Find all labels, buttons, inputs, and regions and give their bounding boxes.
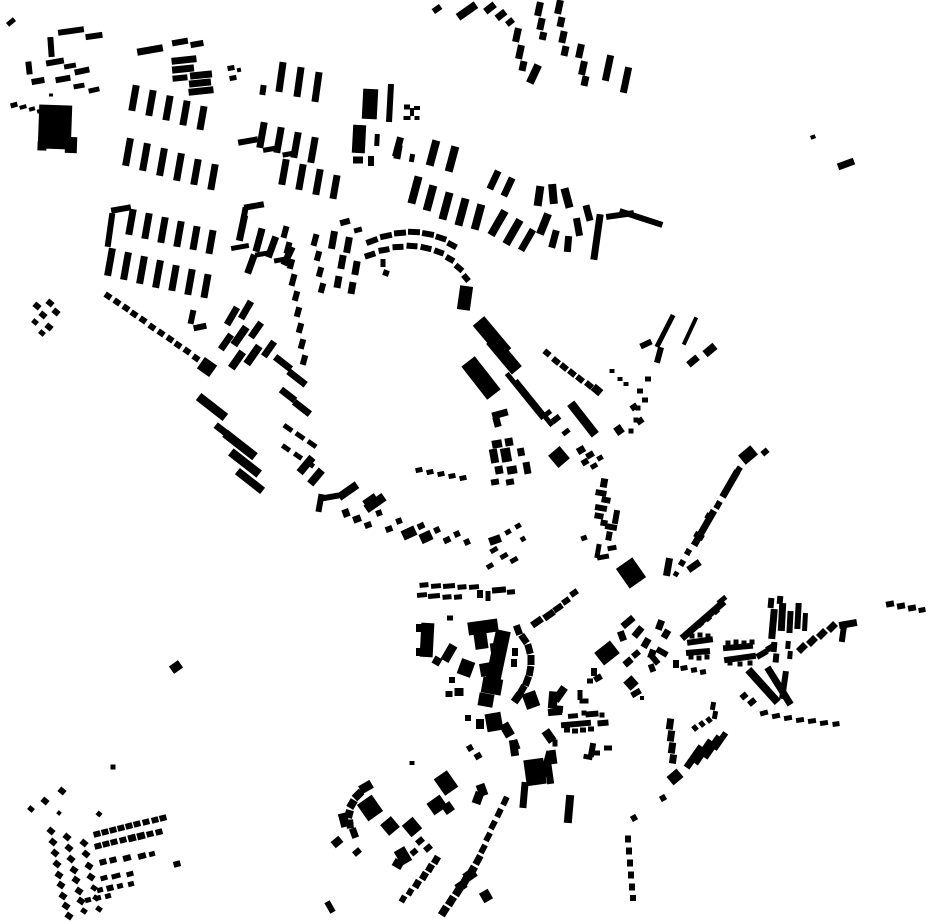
building-footprint xyxy=(594,751,600,756)
building-footprint xyxy=(492,586,506,593)
building-footprint xyxy=(750,640,755,645)
building-footprint xyxy=(469,584,479,590)
building-footprint xyxy=(645,377,651,382)
building-footprint xyxy=(528,655,535,665)
building-footprint xyxy=(476,719,484,729)
building-footprint xyxy=(742,641,747,646)
building-footprint xyxy=(690,634,695,639)
building-footprint xyxy=(580,699,589,704)
building-footprint xyxy=(585,710,598,717)
building-footprint xyxy=(564,728,570,733)
building-footprint xyxy=(37,141,46,150)
building-footprint-map xyxy=(0,0,930,924)
building-footprint xyxy=(832,721,840,727)
map-canvas xyxy=(0,0,930,924)
building-footprint xyxy=(629,884,635,891)
building-footprint xyxy=(406,243,417,250)
building-footprint xyxy=(698,633,703,638)
building-footprint xyxy=(697,656,702,661)
building-footprint xyxy=(625,836,631,843)
building-footprint xyxy=(428,593,440,599)
building-footprint xyxy=(449,677,455,683)
building-footprint xyxy=(564,236,572,253)
building-footprint xyxy=(410,108,414,116)
building-footprint xyxy=(417,592,427,598)
building-footprint xyxy=(416,624,424,632)
building-footprint xyxy=(587,679,593,684)
building-footprint xyxy=(787,651,793,659)
building-footprint xyxy=(642,398,648,403)
building-footprint xyxy=(504,437,513,446)
building-footprint xyxy=(618,377,623,381)
building-footprint xyxy=(610,369,615,373)
building-footprint xyxy=(49,94,53,97)
building-footprint xyxy=(517,447,525,456)
building-footprint xyxy=(408,229,420,235)
building-footprint xyxy=(352,125,366,154)
building-footprint xyxy=(597,720,608,727)
building-footprint xyxy=(511,659,517,667)
building-footprint xyxy=(636,406,641,411)
building-footprint xyxy=(457,584,466,590)
building-footprint xyxy=(410,761,415,765)
building-footprint xyxy=(771,642,778,652)
building-footprint xyxy=(486,591,491,601)
building-footprint xyxy=(604,746,612,751)
building-footprint xyxy=(368,156,374,166)
building-footprint xyxy=(734,640,739,645)
building-footprint xyxy=(768,598,775,608)
building-footprint xyxy=(572,729,578,734)
building-footprint xyxy=(362,89,379,120)
building-footprint xyxy=(785,641,791,649)
building-footprint xyxy=(802,613,808,631)
building-footprint xyxy=(689,655,694,660)
building-footprint xyxy=(726,641,731,646)
building-footprint xyxy=(446,691,453,697)
building-footprint xyxy=(431,583,441,589)
building-footprint xyxy=(404,105,410,110)
building-footprint xyxy=(634,418,639,423)
map-background xyxy=(0,0,930,924)
building-footprint xyxy=(447,616,453,621)
building-footprint xyxy=(706,634,711,639)
building-footprint xyxy=(392,244,403,251)
building-footprint xyxy=(630,895,636,901)
building-footprint xyxy=(600,713,605,718)
building-footprint xyxy=(414,106,420,110)
building-footprint xyxy=(628,872,634,879)
building-footprint xyxy=(673,660,679,668)
building-footprint xyxy=(507,589,515,595)
building-footprint xyxy=(481,676,503,695)
building-footprint xyxy=(728,661,733,666)
building-footprint xyxy=(443,583,455,589)
building-footprint xyxy=(786,611,793,633)
building-footprint xyxy=(624,382,629,386)
building-footprint xyxy=(640,696,644,700)
building-footprint xyxy=(588,727,594,732)
building-footprint xyxy=(454,594,462,600)
building-footprint xyxy=(415,116,420,120)
building-footprint xyxy=(637,389,643,394)
building-footprint xyxy=(512,648,518,656)
building-footprint xyxy=(629,429,634,434)
building-footprint xyxy=(381,259,386,267)
building-footprint xyxy=(494,465,503,474)
building-footprint xyxy=(506,465,517,475)
building-footprint xyxy=(419,582,428,588)
building-footprint xyxy=(477,590,483,598)
building-footprint xyxy=(773,653,780,662)
building-footprint xyxy=(394,229,406,236)
building-footprint xyxy=(455,688,464,696)
building-footprint xyxy=(374,134,380,146)
building-footprint xyxy=(111,765,116,770)
building-footprint xyxy=(691,667,698,673)
building-footprint xyxy=(353,157,363,164)
building-footprint xyxy=(748,661,753,666)
building-footprint xyxy=(404,116,411,120)
building-footprint xyxy=(442,594,451,600)
building-footprint xyxy=(705,655,710,660)
building-footprint xyxy=(591,668,597,676)
building-footprint xyxy=(626,848,632,855)
building-footprint xyxy=(627,860,633,867)
building-footprint xyxy=(477,692,494,707)
building-footprint xyxy=(465,715,471,721)
building-footprint xyxy=(491,439,502,449)
building-footprint xyxy=(237,68,242,73)
building-footprint xyxy=(568,713,578,719)
building-footprint xyxy=(416,648,424,656)
building-footprint xyxy=(580,728,586,733)
building-footprint xyxy=(485,712,504,733)
building-footprint xyxy=(777,596,784,604)
building-footprint xyxy=(700,669,707,675)
building-footprint xyxy=(548,708,563,716)
building-footprint xyxy=(778,603,786,631)
building-footprint xyxy=(738,662,743,667)
building-footprint xyxy=(669,754,677,764)
building-footprint xyxy=(473,632,488,650)
building-footprint xyxy=(65,137,78,153)
